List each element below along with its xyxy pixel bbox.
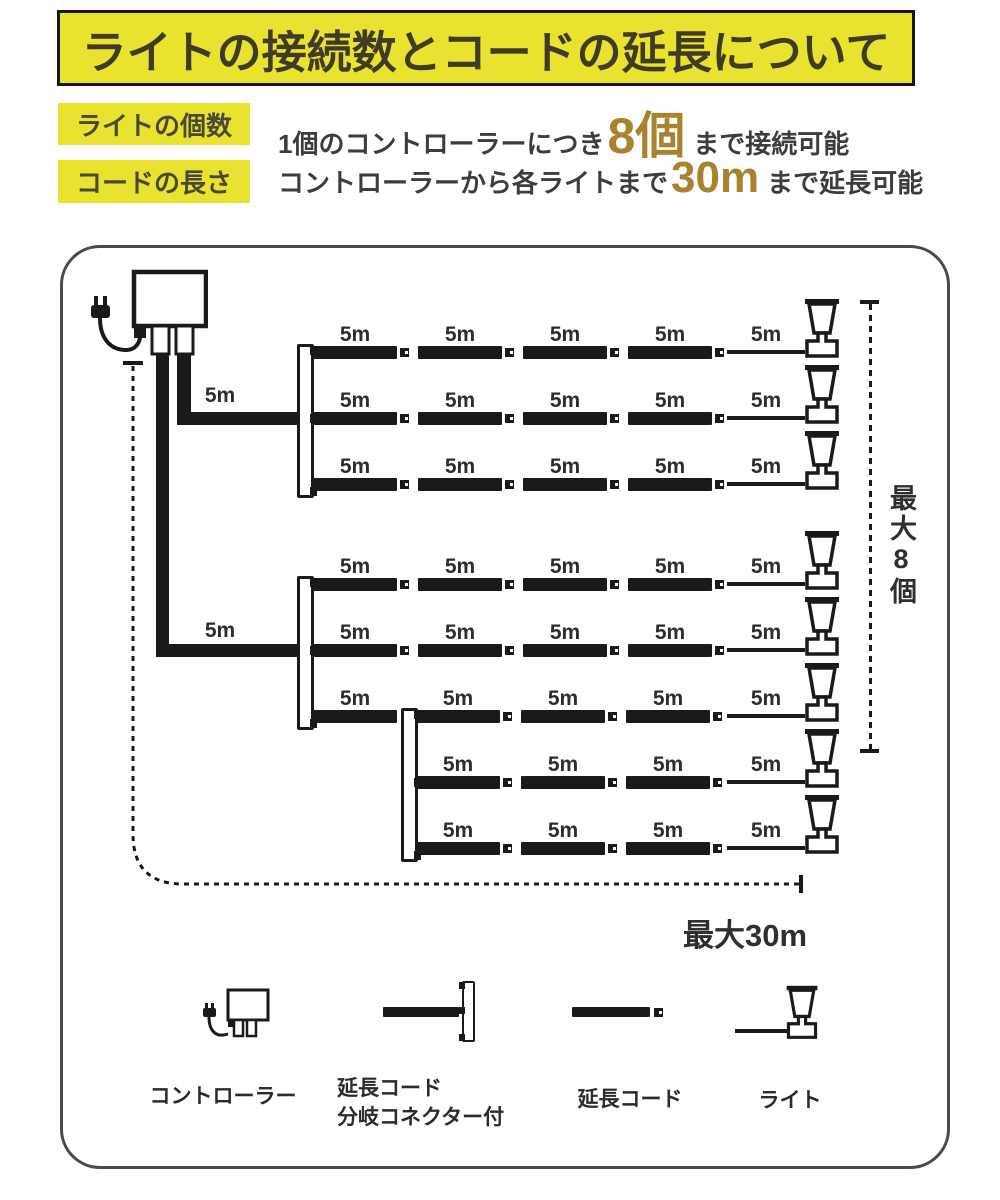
segment-length-label: 5m: [744, 754, 788, 776]
legend-label-extension-cord: 延長コード: [560, 1083, 700, 1113]
segment-length-label: 5m: [744, 556, 788, 578]
cord-connector: [505, 580, 514, 589]
light-icon: [803, 529, 841, 591]
controller-feed-cable-horizontal: [156, 644, 298, 657]
segment-length-label: 5m: [648, 324, 692, 346]
cord-connector: [715, 480, 724, 489]
light-icon: [803, 661, 841, 723]
cord-connector: [610, 580, 619, 589]
cord-connector: [400, 646, 409, 655]
cord-segment: [313, 412, 397, 425]
cord-connector: [503, 712, 512, 721]
light-wire: [727, 780, 805, 784]
cord-connector: [503, 778, 512, 787]
segment-length-label: 5m: [438, 556, 482, 578]
segment-length-label: 5m: [198, 620, 242, 642]
cord-connector: [400, 580, 409, 589]
legend-label-controller: コントローラー: [133, 1080, 313, 1110]
cord-segment: [418, 412, 502, 425]
cord-segment: [523, 412, 607, 425]
cord-connector: [610, 414, 619, 423]
segment-length-label: 5m: [541, 820, 585, 842]
segment-length-label: 5m: [543, 556, 587, 578]
cord-segment: [416, 842, 500, 855]
cord-connector: [608, 778, 617, 787]
segment-length-label: 5m: [648, 556, 692, 578]
segment-length-label: 5m: [436, 820, 480, 842]
cord-segment: [521, 842, 605, 855]
cord-connector: [715, 414, 724, 423]
cord-connector: [610, 646, 619, 655]
segment-length-label: 5m: [541, 754, 585, 776]
light-wire: [727, 350, 805, 354]
cord-segment: [313, 644, 397, 657]
segment-length-label: 5m: [438, 324, 482, 346]
segment-length-label: 5m: [436, 688, 480, 710]
light-icon: [803, 363, 841, 425]
cord-connector: [713, 844, 722, 853]
legend-branch-cord-bar: [383, 1007, 459, 1017]
cord-segment: [523, 346, 607, 359]
cord-connector: [715, 348, 724, 357]
light-icon: [803, 595, 841, 657]
segment-length-label: 5m: [333, 556, 377, 578]
legend-label-branch-connector: 分岐コネクター付: [337, 1101, 504, 1131]
segment-length-label: 5m: [744, 688, 788, 710]
segment-length-label: 5m: [744, 622, 788, 644]
cord-connector: [400, 348, 409, 357]
cord-connector: [505, 348, 514, 357]
segment-length-label: 5m: [646, 820, 690, 842]
segment-length-label: 5m: [543, 390, 587, 412]
segment-length-label: 5m: [198, 385, 242, 407]
cord-segment: [418, 478, 502, 491]
cord-segment: [313, 346, 397, 359]
segment-length-label: 5m: [543, 622, 587, 644]
segment-length-label: 5m: [648, 622, 692, 644]
segment-length-label: 5m: [744, 324, 788, 346]
legend-controller-icon: [202, 986, 270, 1044]
segment-length-label: 5m: [543, 456, 587, 478]
light-wire: [727, 648, 805, 652]
cord-segment: [523, 644, 607, 657]
cord-segment: [628, 346, 712, 359]
legend-cord-connector: [654, 1008, 663, 1017]
cord-connector: [505, 414, 514, 423]
cord-segment: [418, 578, 502, 591]
legend-branch-connector-icon: [462, 981, 475, 1042]
cord-connector: [608, 712, 617, 721]
light-icon: [803, 429, 841, 491]
cord-connector: [713, 712, 722, 721]
segment-length-label: 5m: [648, 456, 692, 478]
cord-segment: [628, 644, 712, 657]
cord-connector: [400, 414, 409, 423]
segment-length-label: 5m: [438, 622, 482, 644]
legend-extension-cord-bar: [572, 1007, 650, 1017]
controller-feed-cable-horizontal: [177, 412, 298, 425]
controller-feed-cable-vertical: [156, 354, 169, 657]
segment-length-label: 5m: [543, 324, 587, 346]
light-wire: [727, 482, 805, 486]
segment-length-label: 5m: [744, 820, 788, 842]
segment-length-label: 5m: [333, 324, 377, 346]
light-wire: [727, 582, 805, 586]
cord-segment: [521, 710, 605, 723]
segment-length-label: 5m: [333, 622, 377, 644]
cord-segment: [416, 710, 500, 723]
light-wire: [727, 714, 805, 718]
segment-length-label: 5m: [333, 390, 377, 412]
branch-connector-icon: [297, 344, 314, 498]
segment-length-label: 5m: [333, 456, 377, 478]
light-icon: [803, 297, 841, 359]
cord-segment: [521, 776, 605, 789]
cord-connector: [715, 646, 724, 655]
cord-segment: [626, 776, 710, 789]
legend-label-branch-cord: 延長コード: [337, 1072, 442, 1102]
segment-length-label: 5m: [438, 390, 482, 412]
cord-connector: [715, 580, 724, 589]
cord-connector: [400, 480, 409, 489]
cord-segment: [628, 478, 712, 491]
cord-connector: [608, 844, 617, 853]
branch-connector-icon: [297, 576, 314, 730]
segment-length-label: 5m: [541, 688, 585, 710]
light-icon: [803, 793, 841, 855]
cord-connector: [713, 778, 722, 787]
connection-network: 5m5m5m5m5m5m5m5m5m5m5m5m5m5m5m5m5m5m5m5m…: [0, 0, 1000, 1200]
segment-length-label: 5m: [436, 754, 480, 776]
segment-length-label: 5m: [648, 390, 692, 412]
cord-connector: [610, 348, 619, 357]
cord-connector: [503, 844, 512, 853]
cord-segment: [523, 478, 607, 491]
cord-connector: [505, 480, 514, 489]
cord-connector: [610, 480, 619, 489]
light-wire: [727, 416, 805, 420]
page: ライトの接続数とコードの延長について ライトの個数 1個のコントローラーにつき …: [0, 0, 1000, 1200]
cord-segment: [523, 578, 607, 591]
light-wire: [727, 846, 805, 850]
cord-segment: [313, 578, 397, 591]
cord-segment: [628, 578, 712, 591]
segment-length-label: 5m: [646, 754, 690, 776]
segment-length-label: 5m: [744, 390, 788, 412]
segment-length-label: 5m: [744, 456, 788, 478]
legend-light-wire: [735, 1029, 787, 1033]
cord-segment: [313, 478, 397, 491]
cord-segment: [626, 842, 710, 855]
cord-segment: [626, 710, 710, 723]
cord-connector: [505, 646, 514, 655]
cord-segment: [418, 346, 502, 359]
segment-length-label: 5m: [333, 688, 377, 710]
segment-length-label: 5m: [646, 688, 690, 710]
legend-light-icon: [784, 984, 820, 1040]
segment-length-label: 5m: [438, 456, 482, 478]
legend-label-light: ライト: [730, 1084, 850, 1114]
cord-segment: [416, 776, 500, 789]
cord-segment: [418, 644, 502, 657]
cord-segment: [313, 710, 397, 723]
cord-segment: [628, 412, 712, 425]
light-icon: [803, 727, 841, 789]
